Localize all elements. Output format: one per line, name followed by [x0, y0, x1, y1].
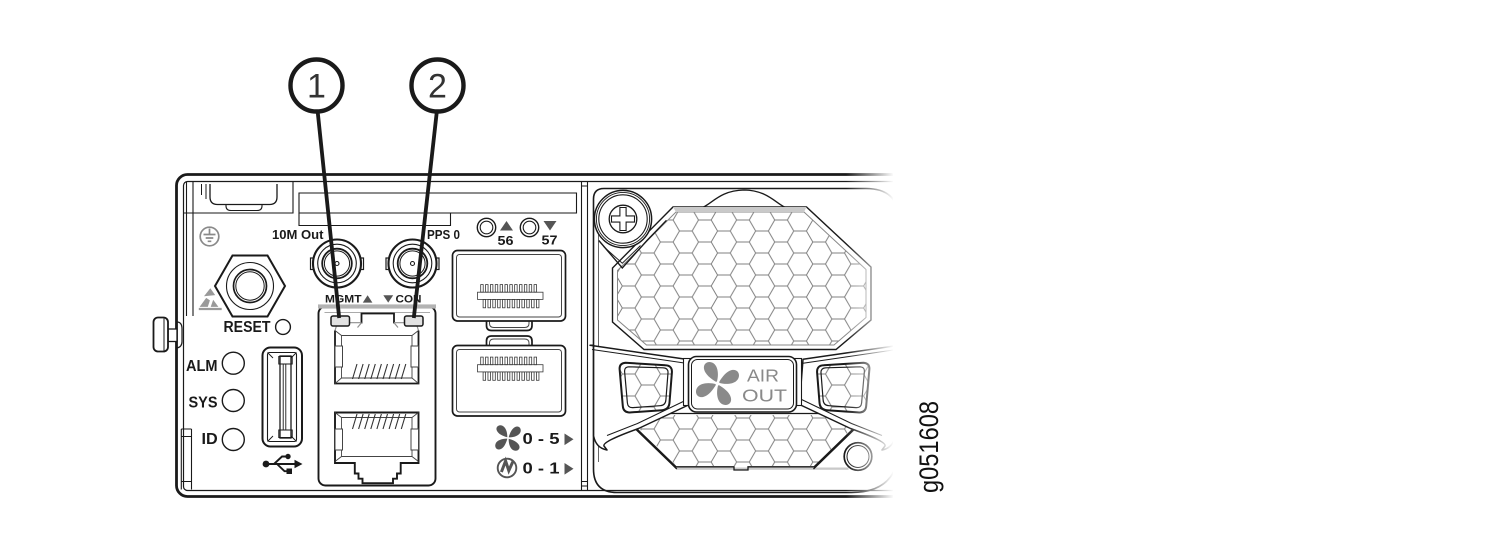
svg-text:MGMT: MGMT	[325, 294, 362, 306]
svg-text:56: 56	[498, 233, 514, 248]
svg-text:SYS: SYS	[189, 395, 218, 412]
svg-text:RESET: RESET	[224, 319, 271, 336]
svg-text:OUT: OUT	[742, 386, 787, 406]
svg-text:1: 1	[307, 68, 326, 106]
svg-text:ID: ID	[202, 431, 218, 448]
svg-text:0 - 1: 0 - 1	[523, 461, 560, 478]
svg-text:AIR: AIR	[747, 366, 779, 386]
svg-text:ALM: ALM	[186, 358, 218, 375]
svg-text:0 - 5: 0 - 5	[523, 431, 560, 448]
svg-text:PPS 0: PPS 0	[427, 228, 460, 242]
svg-text:2: 2	[428, 68, 447, 106]
svg-text:57: 57	[542, 233, 558, 248]
svg-text:10M Out: 10M Out	[272, 228, 324, 242]
svg-text:g051608: g051608	[914, 401, 944, 493]
